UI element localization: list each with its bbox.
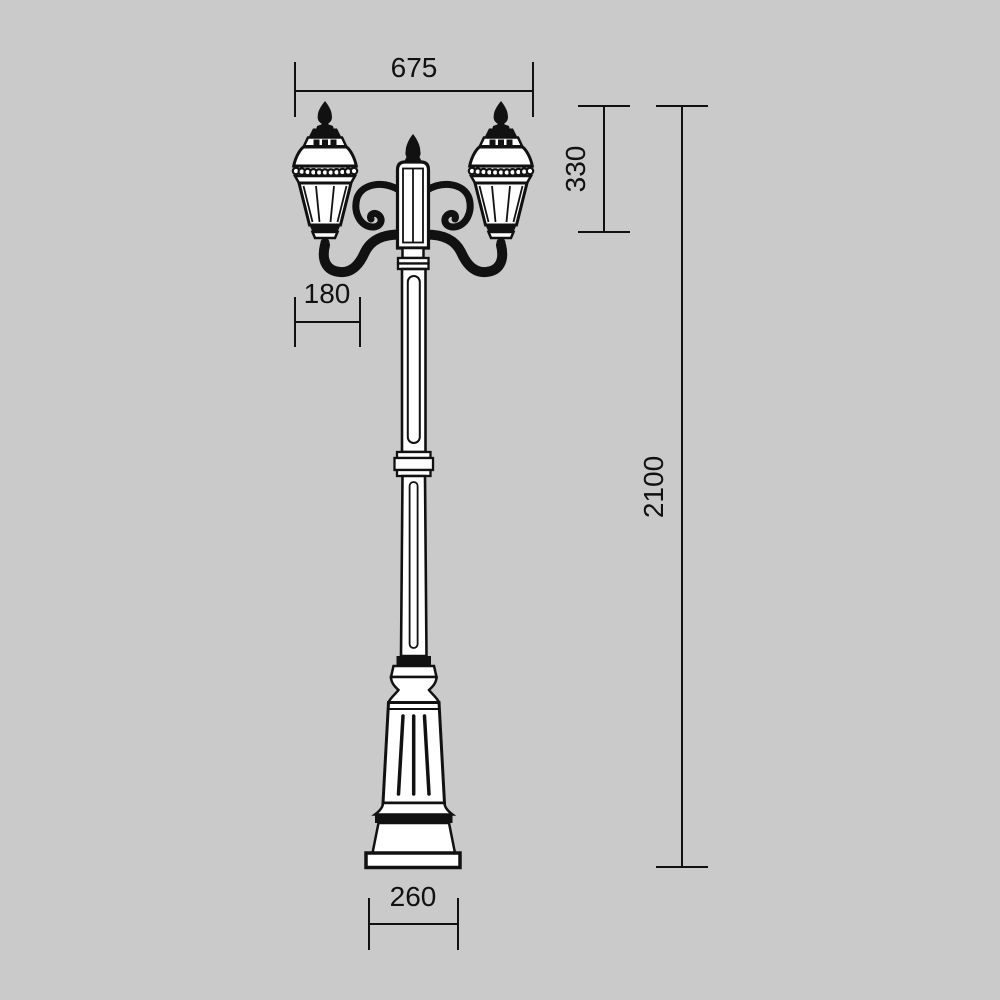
dimension-base-width: 260 [369,881,458,950]
left-lantern [293,101,357,247]
dim-label-lantern-height: 330 [560,146,591,193]
lower-pole [401,476,427,656]
dimension-lantern-height: 330 [560,106,630,232]
dimension-overall-height: 2100 [638,106,708,867]
base-plinth [366,853,460,868]
dim-label-base-width: 260 [390,881,437,912]
dim-label-lantern-width: 180 [304,278,351,309]
dim-label-overall-width: 675 [391,52,438,83]
dim-label-overall-height: 2100 [638,456,669,518]
base [366,656,460,868]
upper-pole [402,269,426,452]
dimension-lantern-width: 180 [295,278,360,347]
drawing-canvas: 675 330 180 2100 260 [0,0,1000,1000]
mid-collar [395,452,434,476]
right-lantern [469,101,533,247]
center-finial [404,134,422,162]
lamp-post-figure [293,101,533,868]
lamp-post-dimension-drawing: 675 330 180 2100 260 [0,0,1000,1000]
head-post [398,162,429,269]
